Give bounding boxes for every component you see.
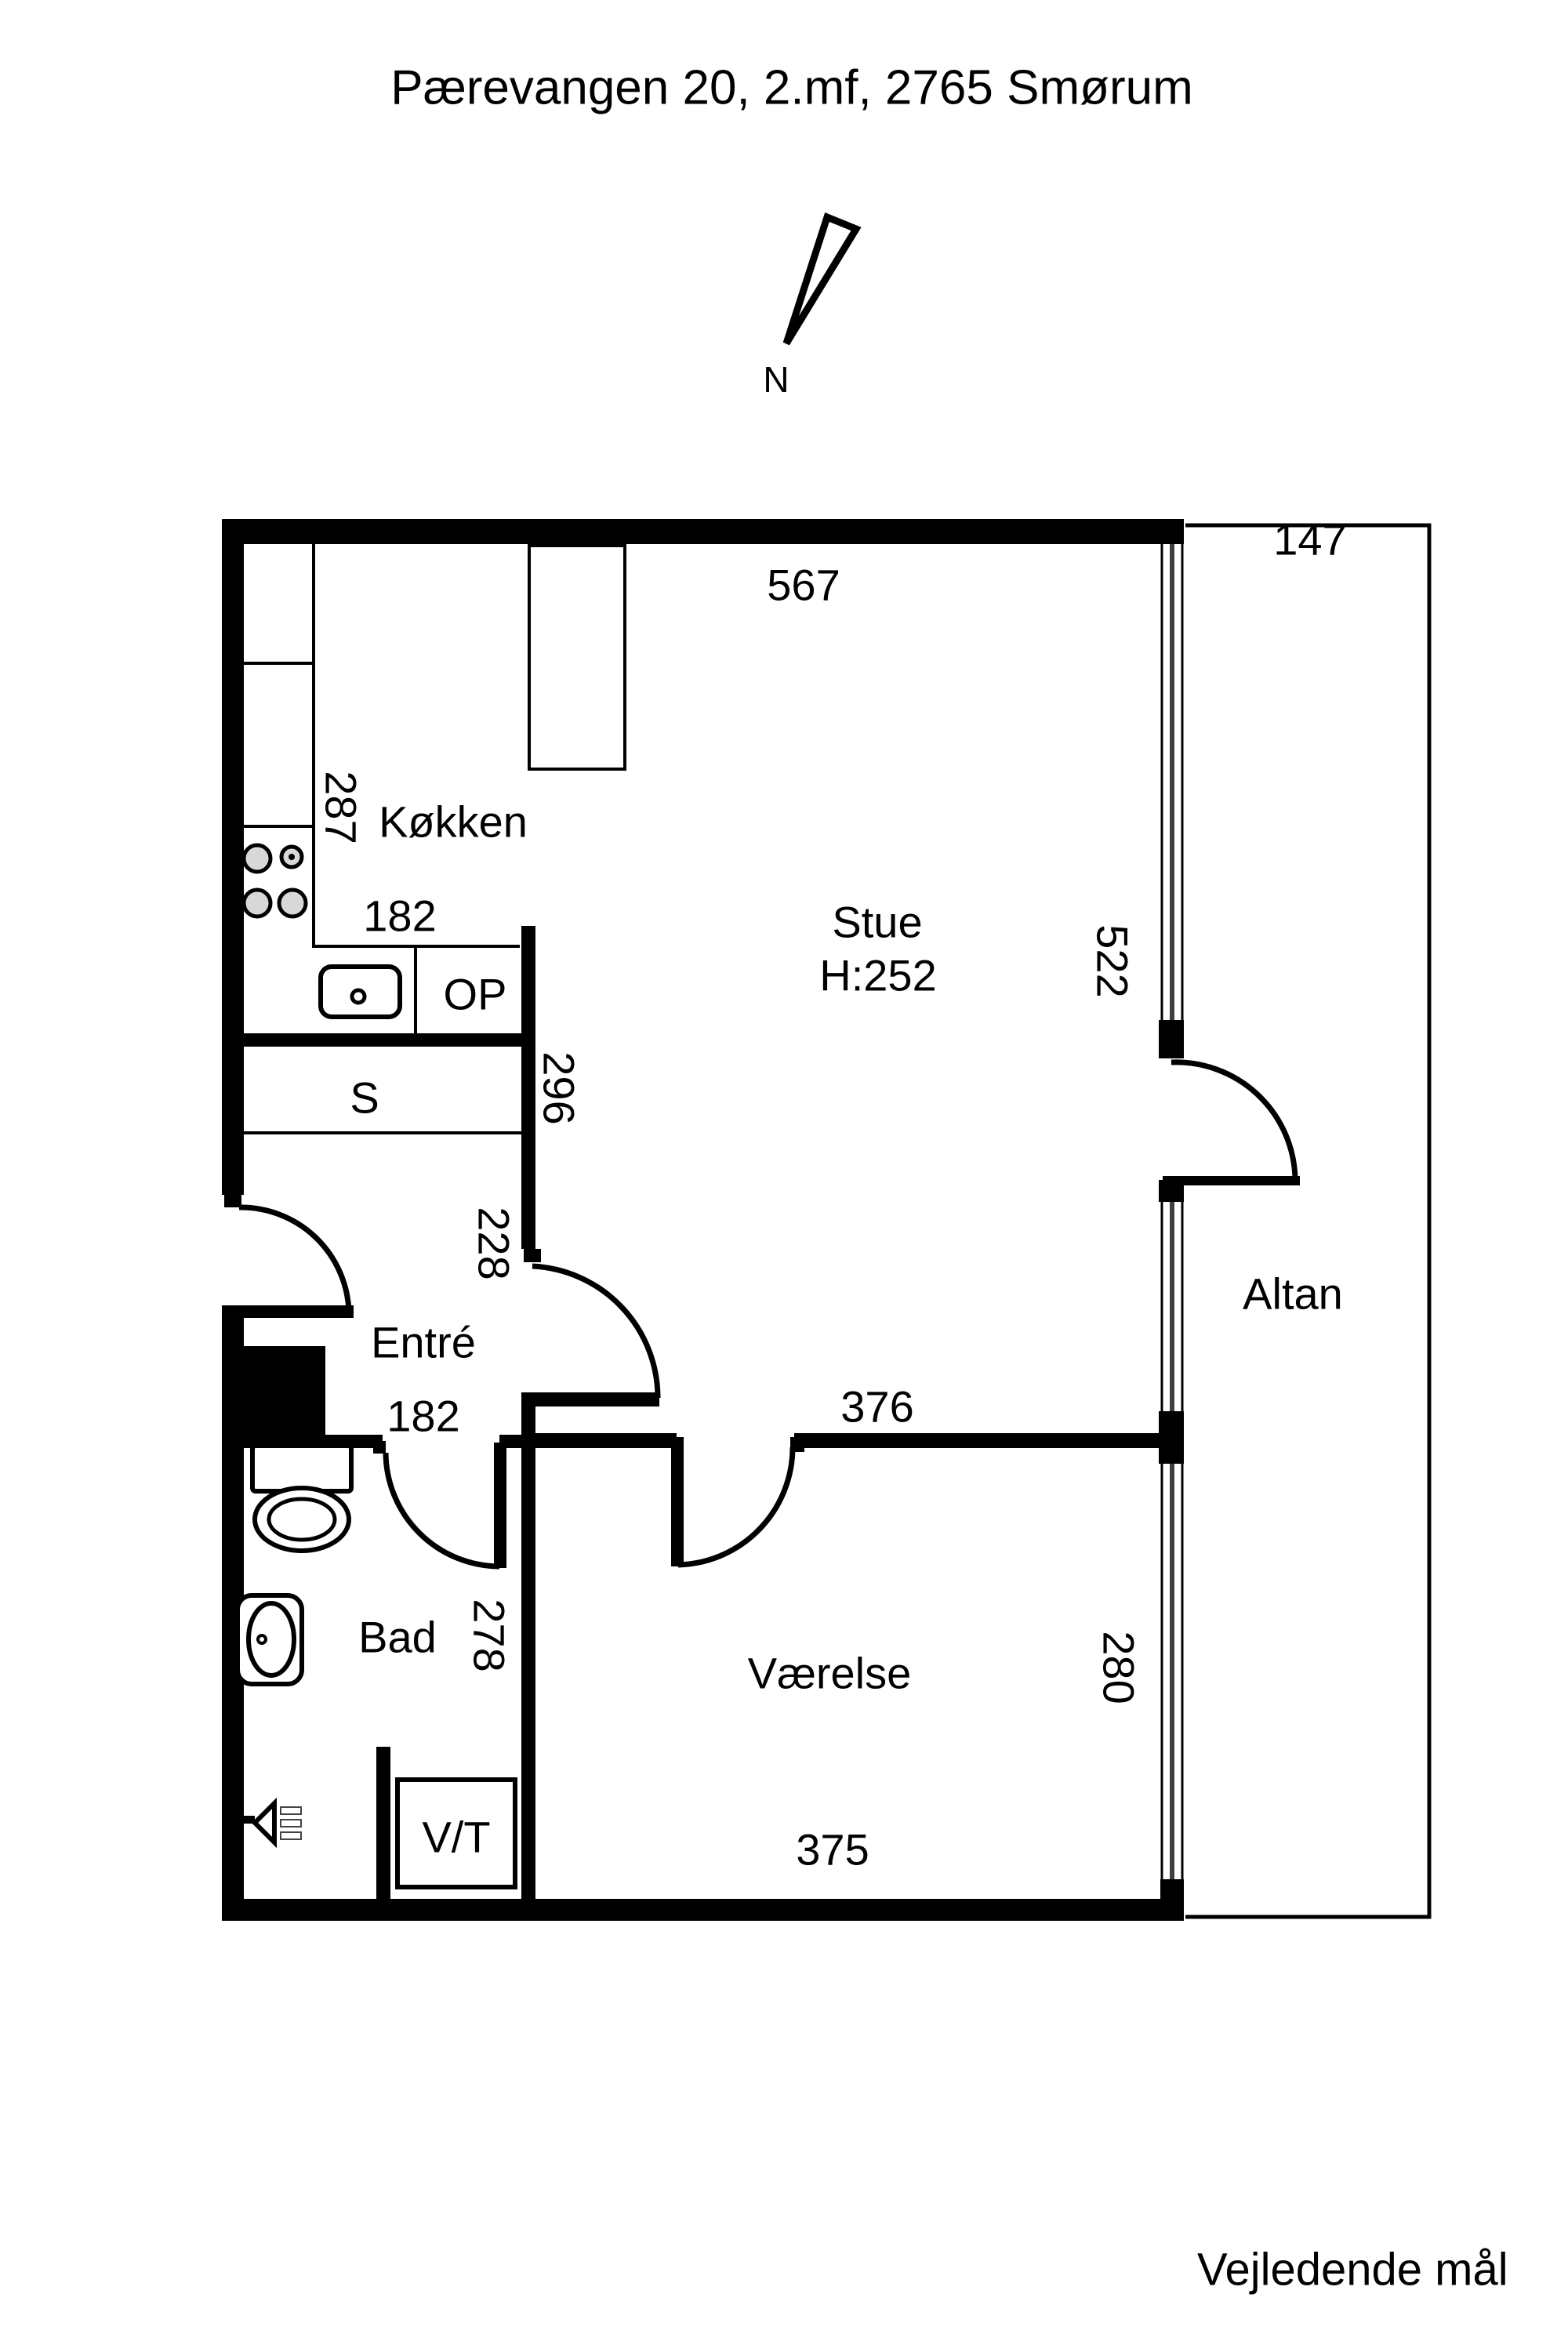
- page-title: Pærevangen 20, 2.mf, 2765 Smørum: [390, 61, 1192, 115]
- room-label-kokken: Køkken: [379, 797, 528, 847]
- wall-corridor-vaerelse: [535, 1433, 677, 1448]
- stue-door-arc: [532, 1266, 658, 1398]
- window-post-c: [1159, 1411, 1184, 1464]
- stue-door-post: [524, 1249, 541, 1262]
- north-arrow-icon: [786, 217, 856, 343]
- vaerelse-door-leaf: [671, 1437, 684, 1566]
- wall-left-upper: [222, 519, 244, 1195]
- vaerelse-door-arc: [678, 1447, 793, 1565]
- dim-vaerelse-height: 280: [1094, 1631, 1144, 1704]
- bath-door-arc: [386, 1453, 499, 1566]
- window-corner-post: [1160, 1879, 1184, 1921]
- wall-bottom: [222, 1899, 1184, 1921]
- room-label-closet: S: [350, 1073, 379, 1123]
- wall-bath-top-right: [499, 1435, 521, 1448]
- dim-stue-height: 522: [1088, 924, 1138, 997]
- room-label-stue: Stue: [832, 898, 922, 947]
- stue-door-leaf: [521, 1392, 659, 1406]
- toilet-icon: [252, 1446, 351, 1551]
- entrance-door-post: [224, 1195, 241, 1207]
- entrance-door-arc: [239, 1207, 349, 1311]
- stove-icon: [244, 845, 306, 916]
- window-stue: [1160, 544, 1184, 1020]
- room-label-entre: Entré: [371, 1318, 476, 1367]
- bath-sink-icon: [238, 1595, 302, 1684]
- window-stue-lower: [1160, 1202, 1184, 1411]
- floorplan-canvas: Pærevangen 20, 2.mf, 2765 Smørum N: [0, 0, 1568, 2352]
- room-label-vaerelse: Værelse: [748, 1649, 912, 1698]
- label-op: OP: [444, 970, 507, 1019]
- wall-stue-vaerelse: [794, 1433, 1160, 1448]
- dim-vaerelse-bottom-width: 375: [796, 1825, 869, 1875]
- room-label-altan: Altan: [1243, 1269, 1343, 1319]
- dim-top-width: 567: [767, 561, 840, 610]
- stue-ceiling-height: H:252: [819, 951, 936, 1000]
- wall-top: [222, 519, 1184, 544]
- wall-core-lower: [521, 1406, 535, 1899]
- entrance-door-leaf: [222, 1305, 354, 1318]
- floorplan-page: Pærevangen 20, 2.mf, 2765 Smørum N: [0, 0, 1568, 2352]
- bath-door-post: [373, 1441, 386, 1454]
- balcony-door-leaf: [1163, 1176, 1300, 1185]
- dim-kitchen-width: 182: [363, 891, 436, 941]
- window-post-a: [1159, 1020, 1184, 1058]
- window-vaerelse: [1160, 1464, 1184, 1879]
- dim-bad-depth: 278: [465, 1599, 514, 1671]
- wall-kitchen-closet: [239, 1033, 535, 1047]
- footer-note: Vejledende mål: [1197, 2245, 1508, 2296]
- dim-balcony-width: 147: [1273, 515, 1346, 564]
- room-label-bad: Bad: [358, 1613, 437, 1662]
- dim-s-depth: 296: [535, 1051, 584, 1124]
- duct-shaft: [240, 1346, 325, 1435]
- shower-icon: [255, 1803, 301, 1842]
- shower-partition-wall: [376, 1747, 390, 1899]
- label-vt: V/T: [422, 1813, 490, 1862]
- kitchen-sink-icon: [321, 967, 400, 1017]
- dim-vaerelse-top-width: 376: [840, 1382, 913, 1432]
- dim-entre-depth: 228: [470, 1207, 519, 1279]
- tall-cabinet: [529, 546, 625, 769]
- north-label: N: [763, 359, 789, 400]
- wall-core-upper: [521, 926, 535, 1249]
- bath-door-leaf: [494, 1443, 506, 1568]
- balcony-outline: [1185, 525, 1429, 1917]
- dim-kitchen-depth: 287: [317, 771, 366, 844]
- dim-corridor-width: 182: [387, 1392, 459, 1441]
- shower-arm-stub: [222, 1816, 255, 1824]
